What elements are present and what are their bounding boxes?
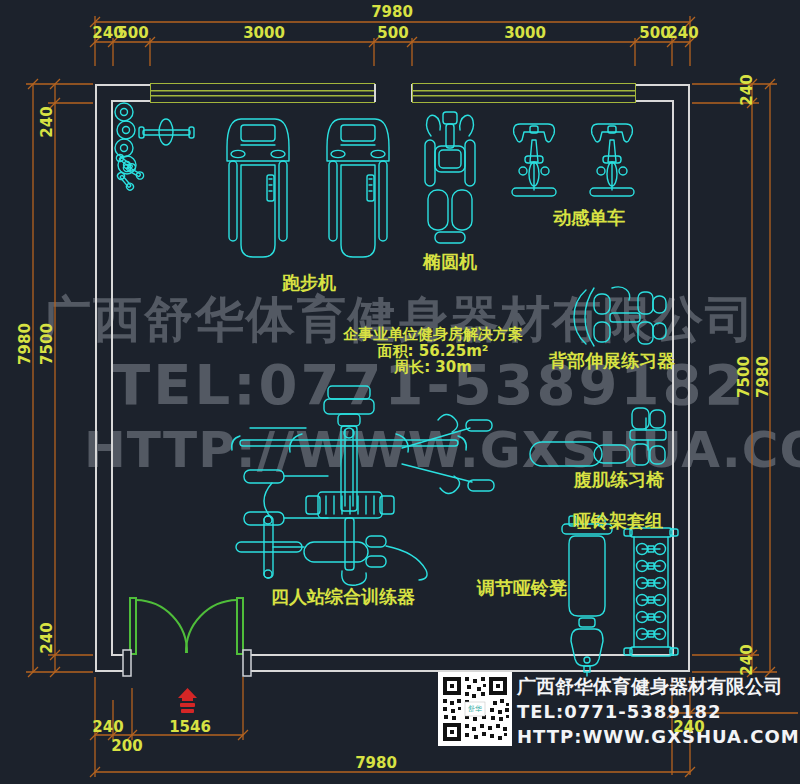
dim-top-seg-3000-right: 3000 [504,26,546,41]
dim-left-wall-bottom: 240 [40,622,55,653]
label-elliptical: 椭圆机 [423,253,477,271]
footer-company: 广西舒华体育健身器材有限公司 [517,677,783,696]
dim-top-total: 7980 [371,5,413,20]
label-ab-chair: 腹肌练习椅 [574,471,664,489]
dim-top-seg-500-right: 500 [639,26,670,41]
dim-bottom-total: 7980 [355,756,397,771]
footer-url: HTTP:WWW.GXSHUA.COM [517,728,800,746]
plan-perimeter: 周长: 30m [394,360,472,375]
qr-logo-text: 舒华 [468,705,482,713]
label-dumbbell-bench: 调节哑铃凳 [477,579,567,597]
dim-right-wall-top: 240 [740,74,755,105]
dim-bottom-door: 1546 [169,720,211,735]
cad-floorplan-canvas: 广西舒华体育健身器材有限公司 TEL:0771-5389182 HTTP://W… [0,0,800,784]
dim-right-wall-bottom: 240 [740,644,755,675]
dim-bottom-right-wall: 240 [673,720,704,735]
plan-title: 企事业单位健身房解决方案 [343,327,523,342]
label-multi-trainer: 四人站综合训练器 [271,588,415,606]
label-back-extension: 背部伸展练习器 [549,352,675,370]
dimension-lines [0,0,800,784]
dim-left-total: 7980 [18,323,33,365]
label-treadmill: 跑步机 [282,274,336,292]
dim-top-seg-500-mid: 500 [377,26,408,41]
dim-left-wall-top: 240 [40,106,55,137]
plan-area: 面积: 56.25m² [378,344,489,359]
label-dumbbell-rack: 哑铃架套组 [573,512,663,530]
dim-bottom-wall: 240 [92,720,123,735]
dim-right-inner: 7500 [737,356,752,398]
dim-top-seg-240-right: 240 [667,26,698,41]
dim-left-inner: 7500 [40,323,55,365]
dim-top-seg-500: 500 [117,26,148,41]
qr-code: 舒华 [438,672,512,746]
dim-top-seg-3000: 3000 [243,26,285,41]
dim-bottom-offset: 200 [111,739,142,754]
dim-right-total: 7980 [756,356,771,398]
label-spin-bike: 动感单车 [553,209,625,227]
